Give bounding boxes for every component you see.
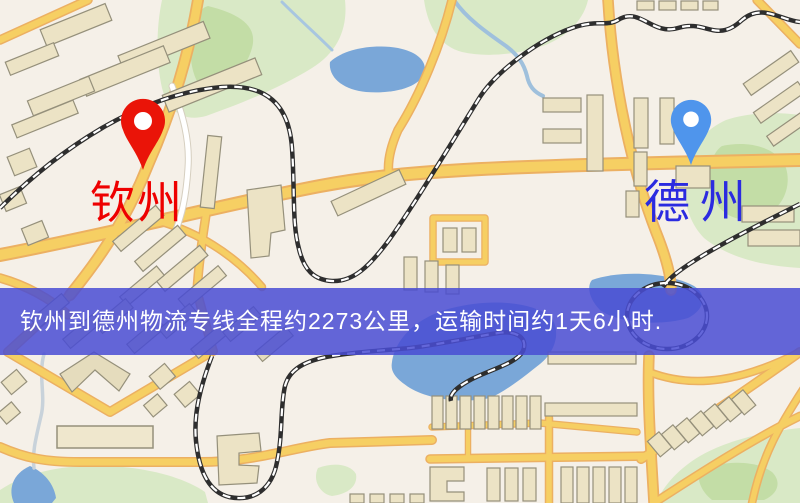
destination-pin-icon bbox=[669, 99, 713, 167]
origin-city-label: 钦州 bbox=[62, 181, 212, 226]
origin-pin[interactable] bbox=[119, 98, 167, 172]
destination-city-label: 德州 bbox=[622, 180, 778, 226]
route-info-text: 钦州到德州物流专线全程约2273公里，运输时间约1天6小时. bbox=[20, 308, 662, 334]
origin-pin-icon bbox=[119, 98, 167, 172]
destination-pin-shape bbox=[671, 100, 711, 165]
route-info-banner: 钦州到德州物流专线全程约2273公里，运输时间约1天6小时. bbox=[0, 288, 800, 355]
map-canvas bbox=[0, 0, 800, 503]
logistics-route-map: 钦州 德州 钦州到德州物流专线全程约2273公里，运输时间约1天6小时. bbox=[0, 0, 800, 503]
destination-pin[interactable] bbox=[669, 99, 713, 167]
origin-pin-shape bbox=[121, 99, 165, 170]
